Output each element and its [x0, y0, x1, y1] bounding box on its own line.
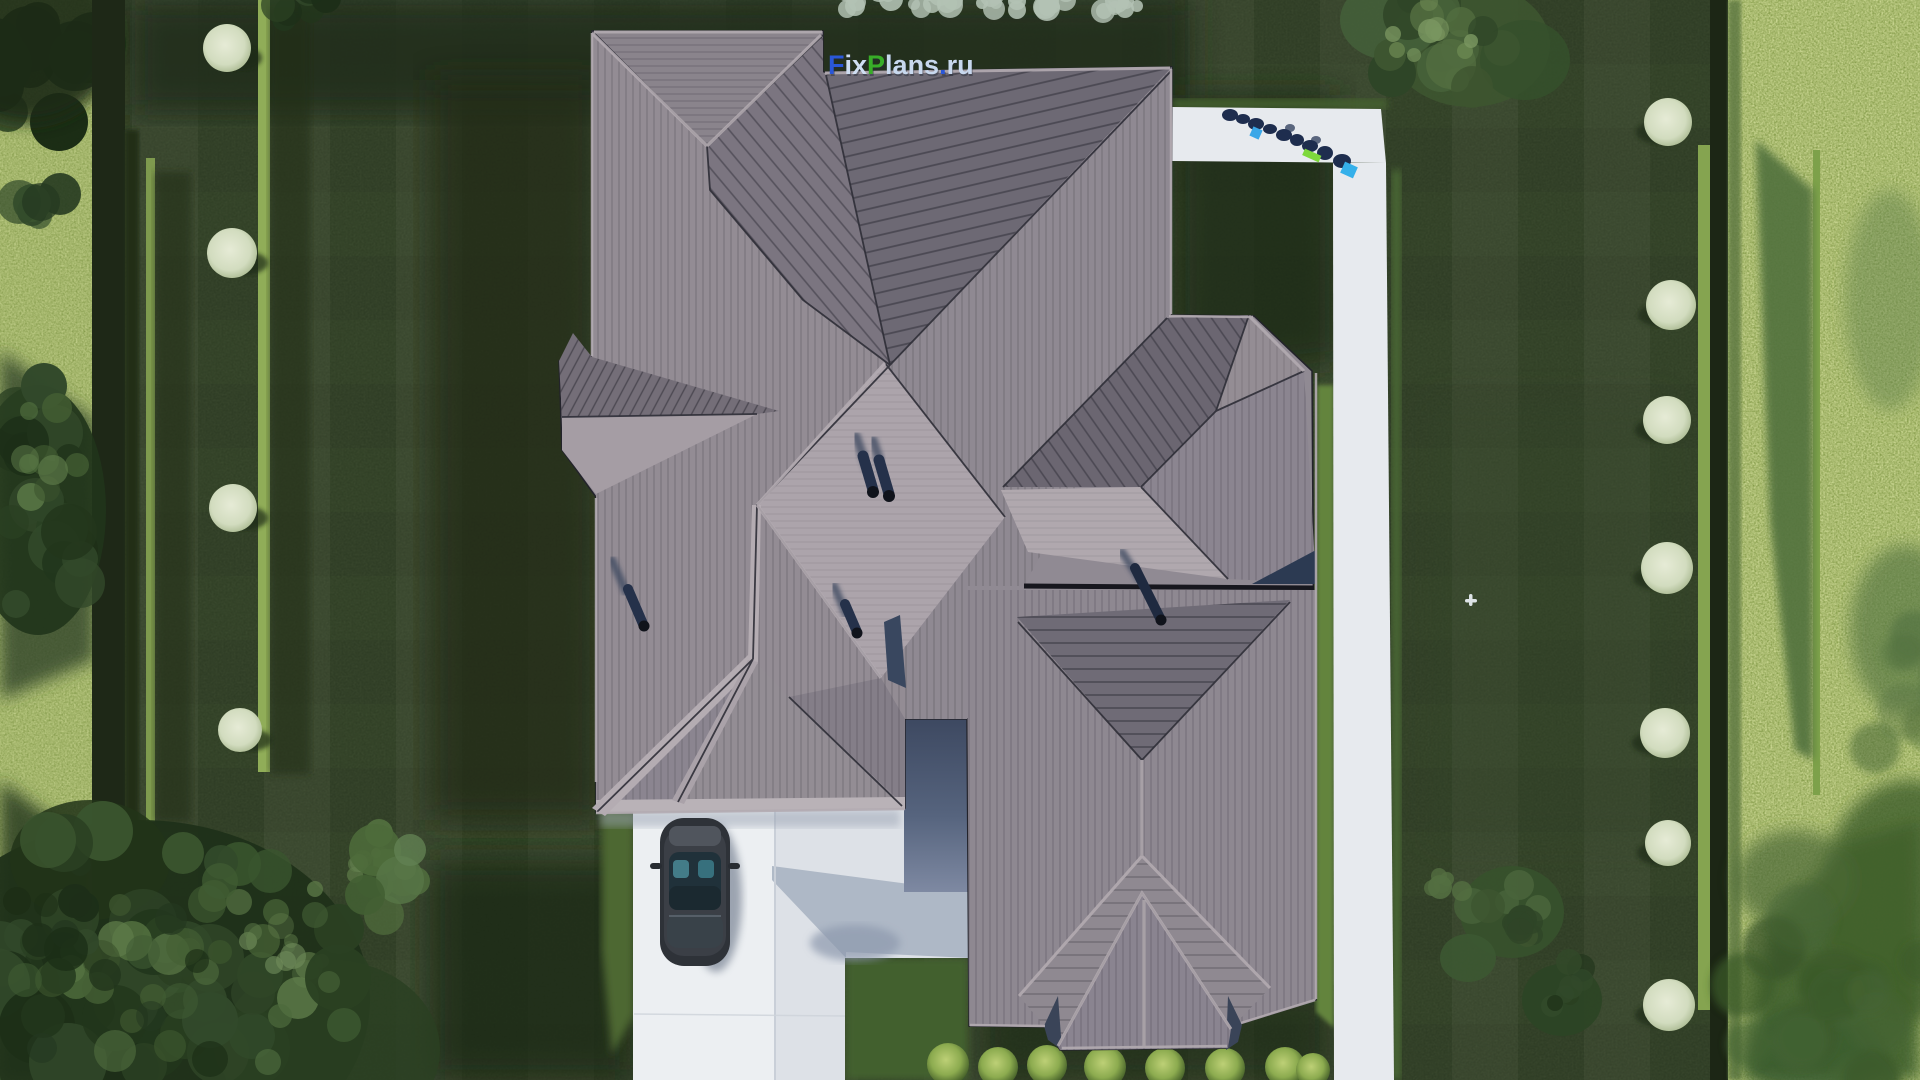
svg-text:FixPlans.ru: FixPlans.ru: [828, 50, 974, 80]
